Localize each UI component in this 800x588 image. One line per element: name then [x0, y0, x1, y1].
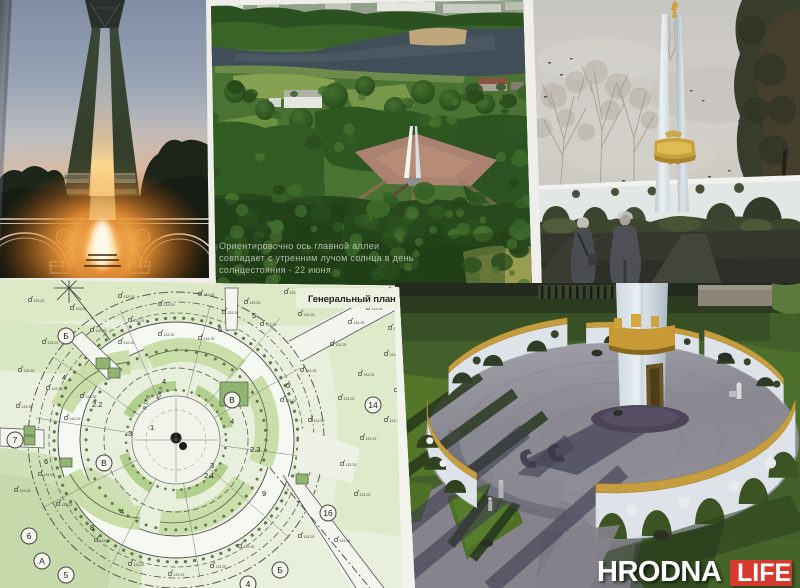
svg-text:1: 1 — [150, 423, 154, 432]
svg-text:3: 3 — [210, 461, 214, 470]
svg-text:2.1: 2.1 — [204, 471, 214, 480]
svg-text:В: В — [229, 395, 235, 405]
svg-text:3: 3 — [128, 429, 132, 438]
svg-text:2.3: 2.3 — [250, 445, 260, 454]
svg-text:7: 7 — [13, 435, 18, 445]
svg-text:14: 14 — [368, 400, 378, 410]
svg-text:9: 9 — [262, 489, 266, 498]
svg-text:8: 8 — [90, 523, 94, 532]
svg-text:5: 5 — [64, 570, 69, 580]
svg-text:7: 7 — [296, 499, 300, 508]
svg-text:6: 6 — [44, 457, 48, 466]
svg-text:Ориентировочно ось главной алл: Ориентировочно ось главной аллеи — [219, 241, 379, 251]
svg-text:2.2: 2.2 — [92, 400, 102, 409]
svg-text:совпадает с утренним лучом сол: совпадает с утренним лучом солнца в день — [219, 253, 414, 263]
svg-text:4: 4 — [62, 373, 66, 382]
svg-text:4: 4 — [162, 377, 166, 386]
svg-text:5: 5 — [286, 381, 290, 390]
svg-text:6: 6 — [27, 531, 32, 541]
svg-text:Б: Б — [277, 565, 283, 575]
svg-text:Генеральный план: Генеральный план — [308, 294, 396, 305]
svg-text:солнцестояния - 22 июня: солнцестояния - 22 июня — [219, 265, 331, 275]
svg-text:4: 4 — [246, 579, 251, 588]
svg-text:В: В — [101, 458, 107, 468]
svg-text:5: 5 — [252, 311, 256, 320]
svg-text:5: 5 — [218, 325, 222, 334]
svg-text:А: А — [39, 556, 45, 566]
svg-text:4: 4 — [230, 417, 234, 426]
svg-text:Б: Б — [63, 331, 69, 341]
svg-text:4: 4 — [120, 507, 124, 516]
svg-text:16: 16 — [323, 508, 333, 518]
